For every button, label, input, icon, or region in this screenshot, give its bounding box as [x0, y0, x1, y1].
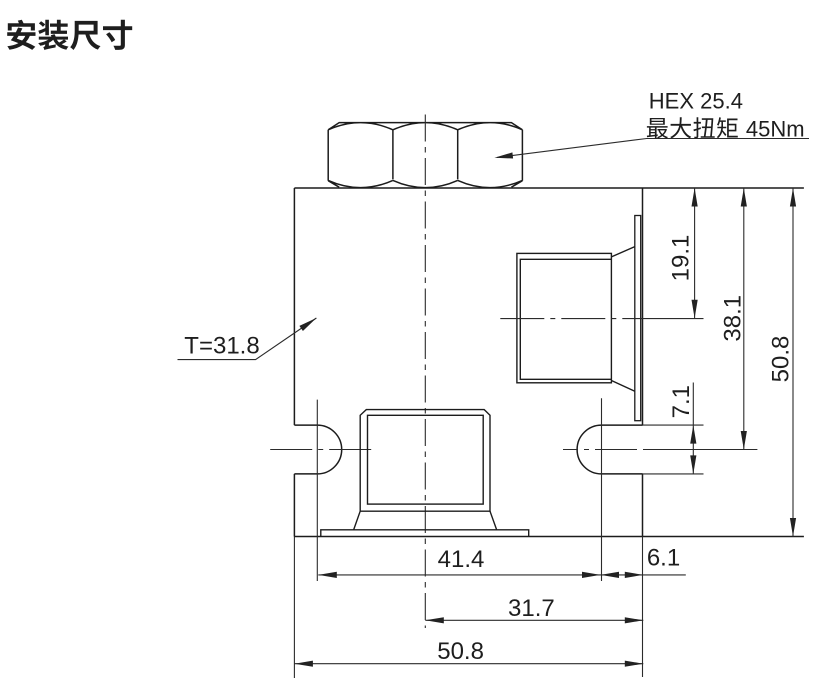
svg-text:6.1: 6.1	[647, 545, 680, 572]
svg-text:31.7: 31.7	[508, 595, 555, 622]
svg-text:HEX 25.4: HEX 25.4	[649, 88, 743, 113]
svg-text:41.4: 41.4	[438, 546, 485, 573]
svg-text:50.8: 50.8	[768, 336, 795, 383]
svg-text:38.1: 38.1	[719, 295, 746, 342]
svg-text:45Nm: 45Nm	[746, 117, 805, 142]
svg-text:50.8: 50.8	[437, 638, 484, 665]
svg-text:19.1: 19.1	[668, 235, 695, 282]
svg-text:7.1: 7.1	[668, 385, 695, 418]
svg-text:T=31.8: T=31.8	[184, 333, 259, 360]
